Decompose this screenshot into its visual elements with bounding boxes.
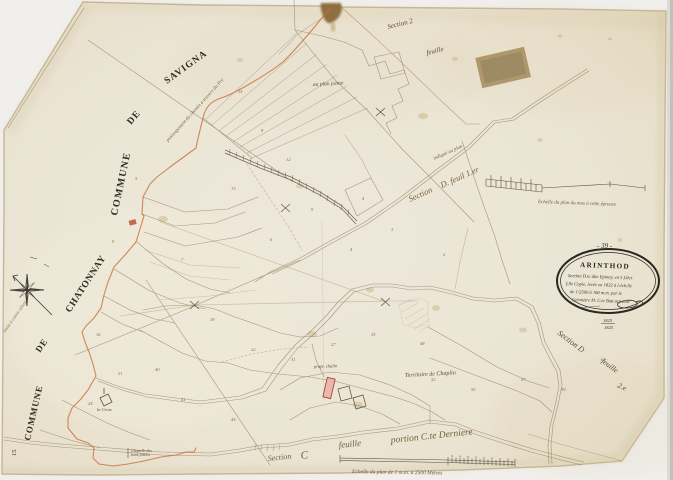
svg-text:bons fidèles: bons fidèles (131, 452, 150, 457)
svg-text:24: 24 (88, 401, 93, 406)
svg-text:12: 12 (286, 157, 291, 162)
svg-text:la Croix: la Croix (97, 407, 112, 412)
svg-text:41: 41 (181, 397, 186, 402)
svg-text:1825: 1825 (604, 325, 614, 330)
svg-text:59: 59 (561, 387, 566, 392)
svg-text:27: 27 (331, 342, 336, 347)
svg-text:propr. chalin: propr. chalin (313, 363, 338, 369)
svg-text:21: 21 (118, 371, 123, 376)
svg-text:31: 31 (291, 357, 296, 362)
svg-text:15: 15 (11, 450, 18, 457)
svg-text:1825: 1825 (603, 318, 613, 323)
svg-text:55: 55 (471, 387, 476, 392)
svg-text:48: 48 (420, 341, 425, 346)
svg-text:44: 44 (231, 417, 236, 422)
svg-text:52: 52 (431, 377, 436, 382)
svg-text:35: 35 (371, 332, 376, 337)
svg-text:13: 13 (231, 186, 236, 191)
svg-text:16: 16 (96, 332, 101, 337)
svg-text:61: 61 (601, 357, 606, 362)
svg-text:14: 14 (238, 89, 243, 94)
svg-text:18: 18 (210, 317, 215, 322)
svg-text:57: 57 (521, 377, 526, 382)
svg-text:22: 22 (251, 347, 256, 352)
svg-text:40: 40 (155, 367, 160, 372)
